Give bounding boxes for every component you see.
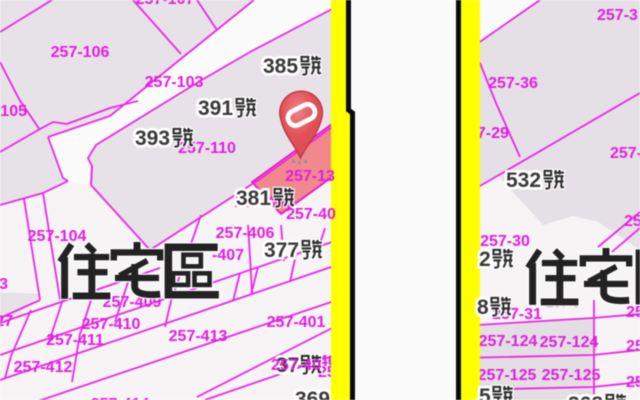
svg-text:257-13: 257-13 xyxy=(285,168,335,185)
svg-text:391: 391 xyxy=(198,97,233,120)
svg-text:8: 8 xyxy=(477,296,489,319)
svg-text:385: 385 xyxy=(263,55,298,78)
svg-text:257-104: 257-104 xyxy=(28,228,87,245)
svg-text:257-125: 257-125 xyxy=(478,367,537,384)
svg-text:368: 368 xyxy=(568,393,603,400)
svg-text:257-414: 257-414 xyxy=(91,396,150,400)
svg-text:257-3: 257-3 xyxy=(597,7,638,24)
svg-text:381: 381 xyxy=(236,187,271,210)
svg-text:257-106: 257-106 xyxy=(51,44,110,61)
svg-text:257-1: 257-1 xyxy=(626,338,640,355)
svg-text:257-110: 257-110 xyxy=(178,140,236,157)
svg-text:257-1: 257-1 xyxy=(626,374,640,391)
svg-text:257-412: 257-412 xyxy=(14,359,73,376)
svg-text:3: 3 xyxy=(0,276,8,293)
svg-text:2: 2 xyxy=(479,248,491,271)
svg-text:257-36: 257-36 xyxy=(488,75,538,92)
svg-text:257-105: 257-105 xyxy=(0,103,27,120)
svg-text:257-1: 257-1 xyxy=(626,304,640,321)
svg-text:257-124: 257-124 xyxy=(479,333,538,350)
svg-text:5: 5 xyxy=(479,385,491,400)
svg-text:257-40: 257-40 xyxy=(271,357,321,374)
svg-text:27: 27 xyxy=(0,313,13,330)
svg-text:257-410: 257-410 xyxy=(82,316,141,333)
svg-text:257-103: 257-103 xyxy=(145,74,204,91)
svg-text:257-401: 257-401 xyxy=(267,314,326,331)
svg-text:257-107: 257-107 xyxy=(136,0,195,8)
svg-text:369: 369 xyxy=(295,388,330,400)
svg-text:257: 257 xyxy=(624,213,640,230)
svg-text:377: 377 xyxy=(264,239,299,262)
svg-text:257-411: 257-411 xyxy=(46,332,104,349)
svg-text:257-: 257- xyxy=(610,145,640,162)
svg-text:257-125: 257-125 xyxy=(542,367,601,384)
svg-text:257-40: 257-40 xyxy=(286,206,336,223)
svg-text:257-124: 257-124 xyxy=(540,334,599,351)
svg-text:257-31: 257-31 xyxy=(492,306,542,323)
svg-text:393: 393 xyxy=(135,127,170,150)
svg-text:532: 532 xyxy=(506,169,541,192)
svg-text:257-413: 257-413 xyxy=(169,328,228,345)
